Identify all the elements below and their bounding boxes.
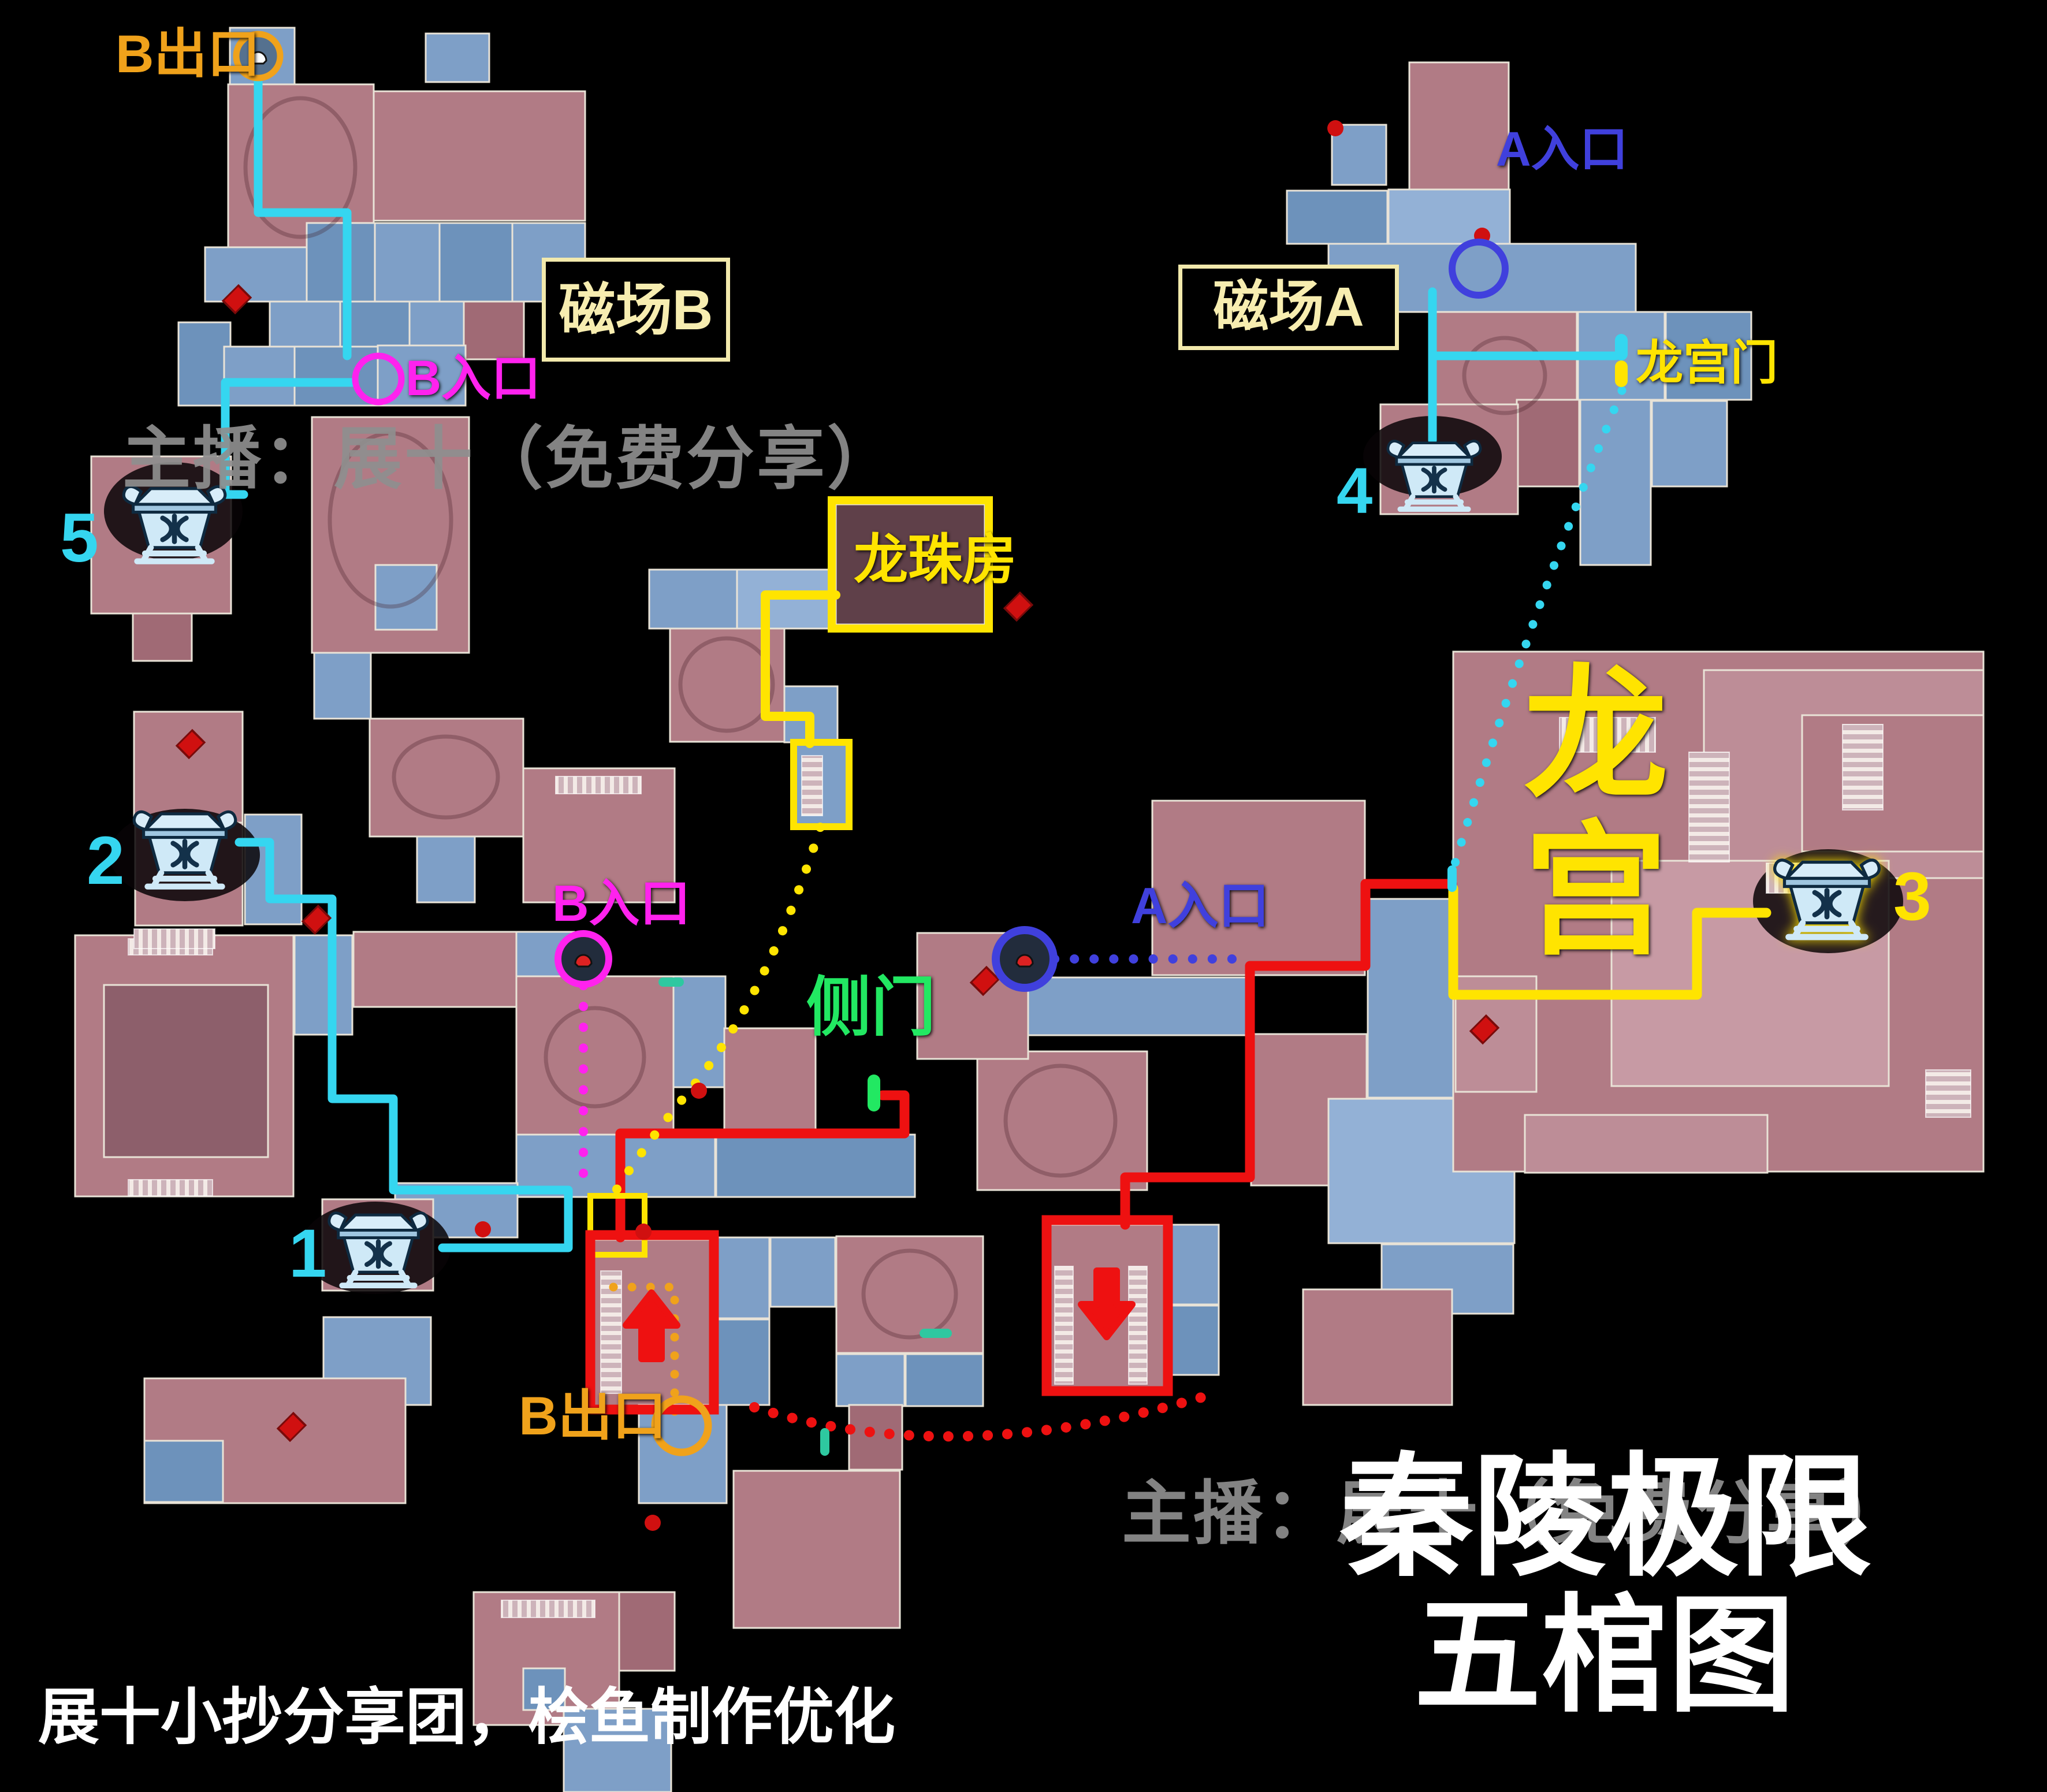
coffin-number: 2 (87, 823, 125, 899)
map-room (440, 223, 512, 302)
map-room (673, 976, 725, 1087)
map-room (375, 565, 437, 630)
label-field-b: 磁场B (542, 258, 730, 362)
label-a-entry-mid: A入口 (1131, 880, 1270, 931)
coffin-number: 3 (1893, 858, 1931, 935)
coffin-number: 4 (1337, 455, 1372, 527)
label-b-entry-mid: B入口 (552, 878, 691, 929)
label-field-a-text: 磁场A (1213, 280, 1364, 335)
label-pearl-room: 龙珠房 (854, 533, 1017, 587)
map-room (205, 247, 307, 302)
label-dragon-palace-char2: 宫 (1524, 819, 1668, 964)
map-room (712, 1237, 769, 1318)
map-room (906, 1354, 983, 1406)
label-a-entry-top: A入口 (1496, 125, 1628, 173)
credit-text: 展十小抄分享团，桧鱼制作优化 (38, 1667, 895, 1756)
map-room (849, 1405, 902, 1470)
map-room (734, 1471, 900, 1628)
red-dot-icon (645, 1515, 661, 1531)
map-room (1025, 977, 1249, 1035)
map-room (977, 1051, 1147, 1190)
map-room (1166, 1306, 1219, 1375)
map-room (133, 614, 192, 661)
map-room (104, 985, 268, 1157)
map-room (619, 1592, 675, 1671)
coffin-number: 5 (60, 499, 99, 577)
red-dot-icon (691, 1083, 707, 1099)
map-room (353, 932, 516, 1007)
dragon-gate-door2 (1615, 360, 1628, 387)
map-room (1409, 62, 1509, 189)
label-dragon-palace-char1: 龙 (1524, 663, 1668, 808)
map-room (716, 1135, 915, 1197)
label-side-door: 侧门 (806, 975, 936, 1040)
red-gem-icon (1004, 593, 1032, 620)
map-room (375, 223, 440, 302)
red-dot-icon (475, 1221, 491, 1237)
map-room (134, 712, 243, 824)
stairs-icon (501, 1600, 595, 1618)
red-dot-icon (635, 1224, 652, 1240)
stairs-icon (1926, 1070, 1971, 1117)
stairs-icon (134, 929, 215, 949)
teal-door-2 (820, 1428, 829, 1456)
label-field-b-text: 磁场B (559, 281, 713, 338)
stairs-icon (128, 1180, 213, 1196)
watermark-top: 主播：展十（免费分享） (122, 425, 898, 493)
label-dragon-gate: 龙宫门 (1636, 340, 1778, 387)
map-room (1802, 715, 1983, 852)
map-room (1166, 1225, 1219, 1304)
stairs-icon (802, 756, 822, 816)
red-gem-icon (303, 906, 330, 934)
map-room (144, 1441, 223, 1502)
palace-entry-tick (1447, 865, 1457, 892)
label-b-entry-top: B入口 (405, 354, 541, 403)
coffin-number: 1 (289, 1215, 327, 1292)
map-room (1517, 400, 1579, 486)
map-room (724, 1028, 816, 1136)
map-room (1652, 401, 1727, 486)
map-room (771, 1237, 835, 1307)
helmet-icon (1017, 955, 1033, 966)
red-dot-icon (1327, 120, 1343, 136)
map-room (1525, 1115, 1767, 1173)
map-room (224, 347, 295, 406)
teal-door-3 (658, 977, 684, 987)
stairs-icon (1129, 1266, 1147, 1384)
map-room (836, 1354, 905, 1406)
map-room (374, 91, 585, 221)
teal-door-1 (920, 1329, 952, 1338)
map-room (516, 976, 673, 1136)
map-room (295, 935, 352, 1035)
map-room (649, 570, 737, 629)
map-title-line1: 秦陵极限 (1340, 1451, 1871, 1584)
map-room (1287, 191, 1387, 244)
map-room (314, 653, 371, 719)
map-room (1303, 1289, 1452, 1405)
helmet-icon (575, 955, 591, 966)
label-b-exit-bottom: B出口 (519, 1389, 667, 1443)
map-title-line2: 五棺图 (1414, 1592, 1795, 1719)
label-b-exit-top: B出口 (116, 28, 260, 81)
dragon-gate-door (1615, 334, 1628, 360)
stairs-icon (556, 776, 641, 794)
stairs-icon (1689, 752, 1729, 862)
map-room (1580, 400, 1651, 565)
map-room (712, 1319, 769, 1405)
map-room (417, 836, 475, 902)
stairs-icon (1055, 1266, 1073, 1384)
label-field-a: 磁场A (1178, 265, 1399, 350)
map-room (1389, 189, 1510, 244)
map-room (426, 34, 489, 82)
game-map-screenshot: 12345 主播：展十（免费分享） 主播：展十（免费分享） B出口 磁场B B入… (0, 0, 2047, 1792)
stairs-icon (1843, 724, 1883, 810)
side-door-marker (868, 1075, 880, 1111)
